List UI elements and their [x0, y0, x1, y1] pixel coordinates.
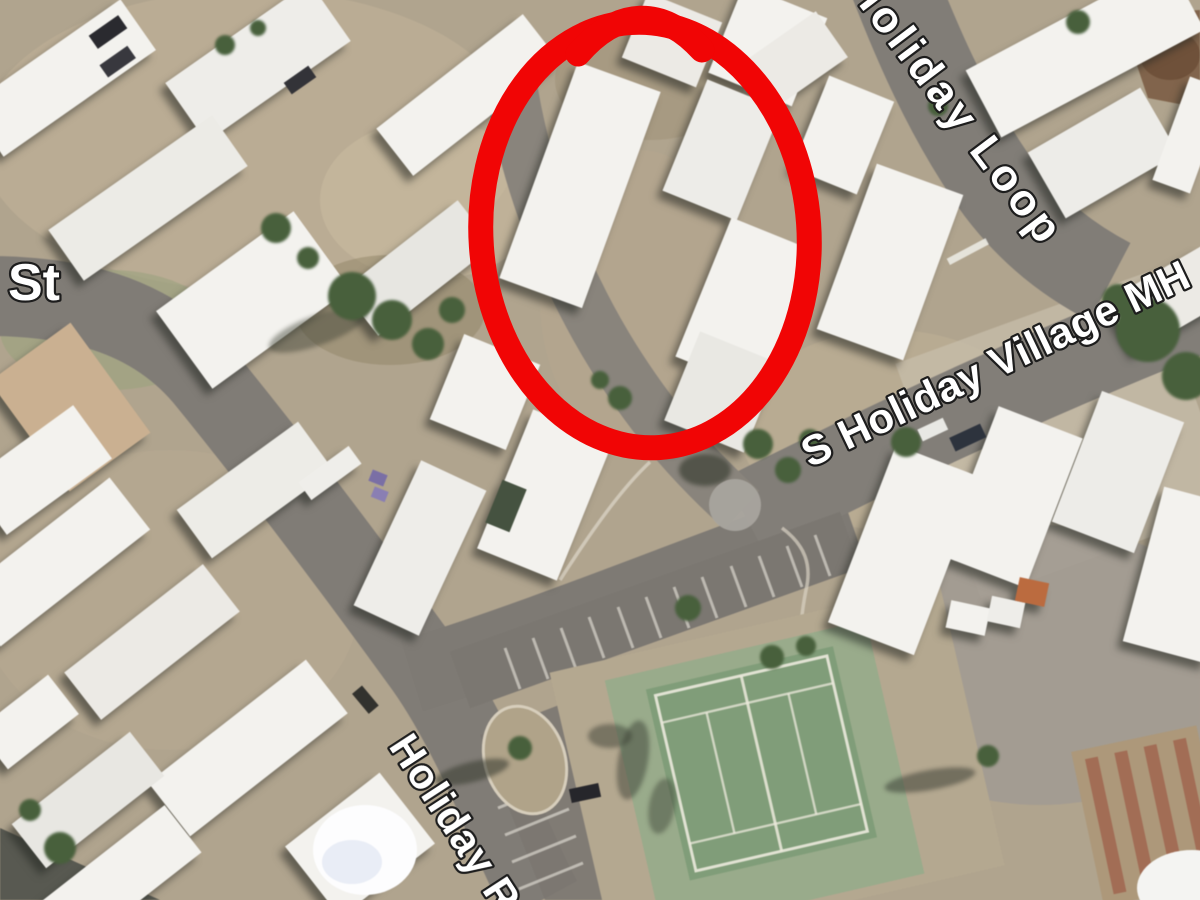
satellite-map[interactable]: St Holiday Loop S Holiday Village MH Hol…	[0, 0, 1200, 900]
junction-dot	[709, 479, 761, 531]
road-label-st: St	[8, 254, 60, 312]
